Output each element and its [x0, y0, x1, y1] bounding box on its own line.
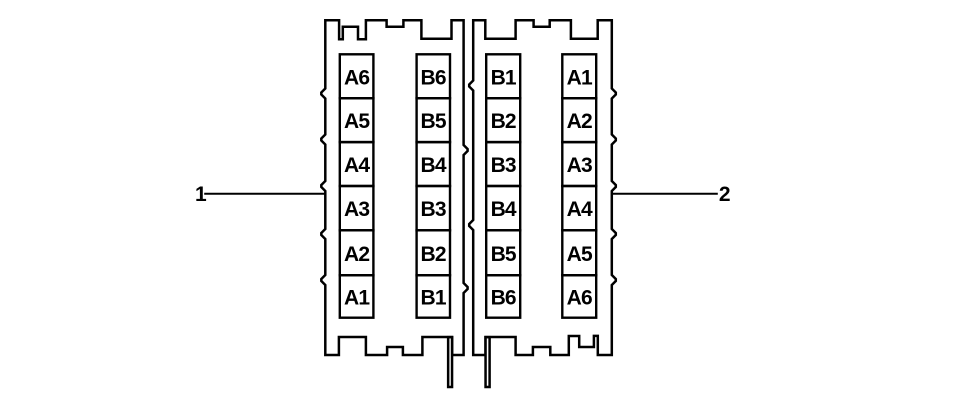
svg-text:A2: A2 — [567, 110, 592, 133]
svg-text:B6: B6 — [420, 66, 445, 89]
svg-text:B5: B5 — [491, 243, 517, 266]
svg-text:A1: A1 — [567, 66, 593, 89]
svg-text:B3: B3 — [491, 154, 516, 177]
svg-text:B5: B5 — [420, 110, 446, 133]
svg-text:A4: A4 — [344, 154, 370, 177]
svg-text:1: 1 — [195, 183, 207, 206]
svg-text:A2: A2 — [344, 243, 369, 266]
svg-text:B1: B1 — [420, 287, 446, 310]
svg-text:A4: A4 — [567, 198, 593, 221]
svg-text:B4: B4 — [420, 154, 446, 177]
svg-text:A3: A3 — [567, 154, 592, 177]
svg-text:B3: B3 — [420, 198, 445, 221]
svg-text:B4: B4 — [491, 198, 517, 221]
svg-text:B1: B1 — [491, 66, 517, 89]
svg-text:B2: B2 — [420, 243, 445, 266]
svg-text:B6: B6 — [491, 287, 516, 310]
svg-text:A1: A1 — [344, 287, 370, 310]
svg-text:A3: A3 — [344, 198, 369, 221]
svg-text:A6: A6 — [344, 66, 369, 89]
svg-text:A5: A5 — [344, 110, 370, 133]
svg-text:A6: A6 — [567, 287, 592, 310]
svg-text:B2: B2 — [491, 110, 516, 133]
svg-text:A5: A5 — [567, 243, 593, 266]
svg-text:2: 2 — [719, 183, 730, 206]
